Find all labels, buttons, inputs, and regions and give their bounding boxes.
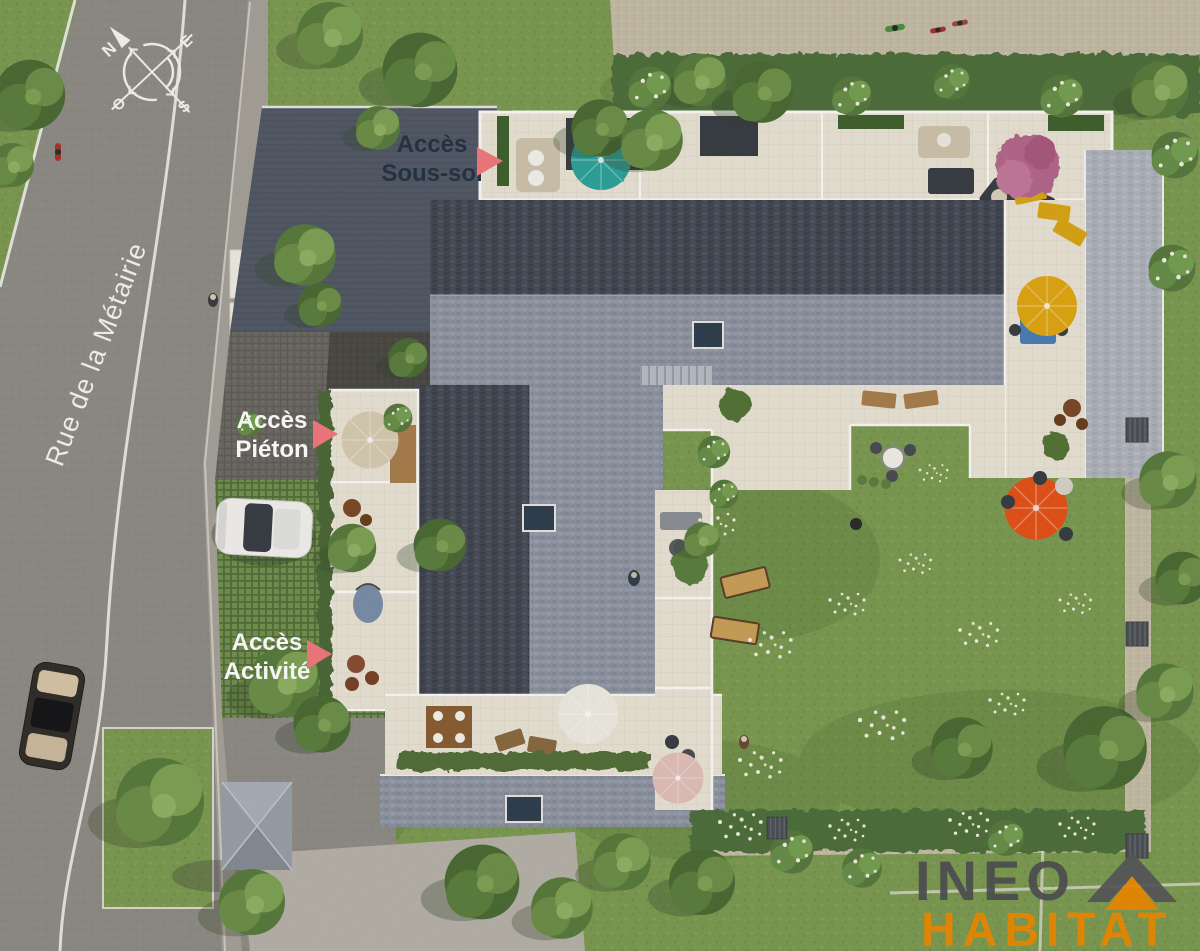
site-plan-rendering: N E S O Rue de la Métairie Accès Sous-so… bbox=[0, 0, 1200, 951]
texture-overlay bbox=[0, 0, 1200, 951]
site-plan: N E S O Rue de la Métairie Accès Sous-so… bbox=[0, 0, 1200, 951]
